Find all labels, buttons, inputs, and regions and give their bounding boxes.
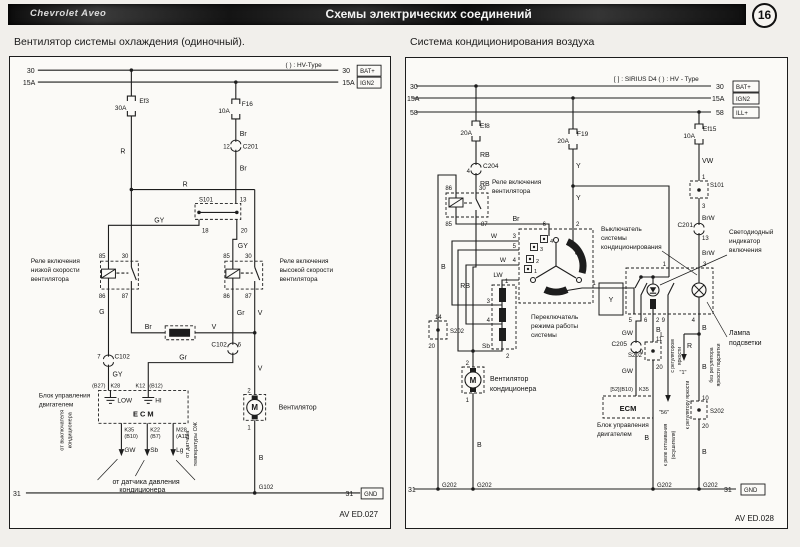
terminal-ign2: IGN2	[360, 81, 375, 87]
label: K28	[110, 384, 120, 390]
label: 31	[724, 487, 732, 494]
label: HI	[155, 397, 162, 404]
label: VW	[702, 158, 714, 165]
ecm-box	[99, 390, 189, 423]
label: вентилятора	[492, 188, 531, 195]
junction-dot	[235, 211, 239, 215]
label: 85	[99, 254, 106, 260]
label: Y	[576, 195, 581, 202]
label: 10	[702, 396, 709, 402]
label: C102	[211, 342, 227, 349]
terminal-bat: BAT+	[736, 85, 751, 91]
wire	[476, 199, 481, 209]
label: 9	[662, 318, 666, 324]
label: 3	[540, 247, 543, 253]
label: Светодиодный	[729, 228, 774, 236]
label: 2	[466, 361, 470, 367]
filled-block	[169, 329, 190, 337]
circle-symbol	[577, 278, 582, 283]
label: Sb	[150, 447, 158, 454]
label: от выключателя	[60, 410, 66, 451]
junction-dot	[651, 349, 655, 353]
switch-arc	[545, 290, 567, 292]
ac-system-diagram: [ ] : SIRIUS D4 ( ) : HV - Type3030BAT+1…	[405, 57, 788, 529]
leader-line	[662, 251, 697, 275]
label: яркости подсветки	[716, 343, 722, 386]
label: 30	[410, 84, 418, 91]
label: 15A	[407, 96, 420, 103]
label: подсветки	[729, 340, 762, 347]
label: 58	[716, 110, 724, 117]
filled-block	[650, 299, 656, 309]
terminal-gnd: GND	[364, 492, 378, 498]
label: BrW	[702, 250, 716, 257]
arrow-head	[665, 395, 671, 402]
label: Переключатель	[531, 314, 579, 321]
label: Вентилятор	[490, 376, 528, 383]
label: 30	[122, 254, 129, 260]
label: ECM	[620, 404, 637, 413]
label: 4	[467, 169, 471, 175]
label: 4	[487, 318, 491, 324]
label: Y	[609, 297, 614, 304]
label: GY	[112, 372, 122, 379]
label: Br	[513, 216, 521, 223]
junction-dot	[697, 188, 701, 192]
label: к реле оттаивания	[663, 423, 669, 466]
filled-block	[470, 388, 476, 392]
label: Y	[576, 163, 581, 170]
pad-dot	[533, 246, 535, 248]
label: Ef3	[139, 98, 149, 105]
label: 86	[445, 186, 452, 192]
label: (B12)	[149, 384, 163, 390]
label: K35	[639, 387, 649, 393]
label: RB	[460, 283, 470, 290]
terminal-ign2: IGN2	[736, 97, 751, 103]
label: 15A	[712, 96, 725, 103]
label: R	[183, 182, 188, 189]
label: кондиционирования	[601, 244, 662, 251]
label: S101	[199, 197, 214, 203]
connector-c102	[228, 343, 238, 354]
label: 86	[223, 294, 230, 300]
label: S202	[450, 329, 465, 335]
label: 30	[27, 68, 35, 75]
label: RB	[480, 152, 490, 159]
label: GW	[622, 368, 634, 375]
label: G	[99, 309, 104, 316]
wire	[635, 277, 641, 288]
brand-label: Chevrolet Aveo	[30, 8, 106, 19]
wire	[452, 241, 519, 305]
right-diagram-title: Система кондиционирования воздуха	[410, 36, 594, 48]
leader-line	[135, 460, 144, 476]
led-triangle	[650, 287, 656, 292]
fuse-ef15	[695, 124, 703, 144]
label: B	[477, 442, 482, 449]
label: R	[120, 149, 125, 156]
label: индикатор	[729, 238, 761, 245]
label: Gr	[179, 355, 187, 362]
label: 13	[240, 197, 247, 203]
label: системы	[531, 332, 557, 339]
coil-diagonal	[449, 198, 463, 207]
label: 13	[702, 236, 709, 242]
label: 87	[122, 294, 129, 300]
label: без регулятора	[709, 347, 715, 382]
label: 20A	[557, 138, 569, 145]
variant-note: ( ) : HV-Type	[286, 62, 323, 69]
label: 20	[702, 424, 709, 430]
label: 20A	[460, 130, 472, 137]
label: GW	[124, 447, 136, 454]
label: Блок управления	[597, 422, 649, 429]
label: 30A	[115, 105, 127, 112]
label: C204	[483, 163, 499, 170]
label: 3	[702, 204, 706, 210]
ground-icon	[105, 397, 117, 403]
coil-diagonal	[226, 269, 240, 278]
label: 1	[247, 425, 251, 431]
label: 1	[702, 175, 706, 181]
fuse-ef3	[127, 96, 135, 116]
label: двигателем	[597, 431, 632, 438]
wire	[641, 283, 647, 314]
label: Br	[240, 166, 248, 173]
label: 31	[345, 491, 353, 498]
label: кондиционера	[490, 386, 536, 393]
label: GW	[622, 330, 634, 337]
switch-arc	[567, 242, 583, 273]
label: S101	[710, 183, 725, 189]
label: Ef8	[480, 123, 490, 130]
wire	[623, 288, 634, 314]
label: "1"	[680, 370, 687, 376]
label: 10A	[218, 108, 230, 115]
label: (B10)	[124, 434, 138, 440]
label: V	[212, 324, 217, 331]
filled-block	[252, 395, 258, 399]
junction-dot	[559, 289, 563, 293]
label: режима работы	[531, 322, 578, 330]
label: C201	[677, 222, 693, 229]
wire	[255, 267, 260, 280]
label: Лампа	[729, 330, 750, 337]
ground-icon	[142, 397, 154, 403]
label: 1	[663, 262, 667, 268]
label: 87	[481, 222, 488, 228]
header-bar: Chevrolet Aveo Схемы электрических соеди…	[8, 4, 746, 25]
label: 31	[13, 491, 21, 498]
filled-block	[499, 308, 506, 322]
wire	[456, 217, 549, 229]
label: B	[702, 449, 707, 456]
label: 20	[656, 365, 663, 371]
circle-symbol	[554, 238, 559, 243]
label: 2	[536, 259, 539, 265]
label: GY	[154, 217, 164, 224]
wire	[131, 267, 136, 280]
label: G202	[703, 483, 718, 489]
splice-s101	[195, 203, 241, 219]
circle-symbol	[531, 278, 536, 283]
label: B	[441, 264, 446, 271]
label: G202	[442, 483, 457, 489]
filled-block	[470, 368, 476, 372]
pad-dot	[527, 268, 529, 270]
label: 20	[241, 228, 248, 234]
label: 1	[592, 281, 596, 287]
terminal-gnd: GND	[744, 488, 758, 494]
label: E C M	[133, 409, 154, 418]
cooling-fan-diagram: ( ) : HV-Type3030BAT+15A15AIGN2Ef330ARF1…	[9, 56, 391, 529]
label: S202	[628, 353, 643, 359]
filled-block	[252, 415, 258, 419]
ac-system-schematic: [ ] : SIRIUS D4 ( ) : HV - Type3030BAT+1…	[406, 69, 787, 528]
leader-line	[98, 459, 118, 480]
label: LW	[493, 272, 503, 279]
label: 85	[223, 254, 230, 260]
label: с регулятором	[670, 339, 676, 373]
arrow-head	[144, 449, 150, 456]
label: 87	[245, 294, 252, 300]
label: F16	[242, 101, 254, 108]
label: [52](B10)	[610, 387, 633, 393]
fuse-ef8	[472, 121, 480, 141]
label: Реле включения	[31, 258, 80, 265]
junction-dot	[436, 328, 440, 332]
label: V	[258, 310, 263, 317]
label: G102	[259, 485, 274, 491]
label: B	[644, 435, 649, 442]
wire	[473, 217, 476, 351]
pad-dot	[543, 238, 545, 240]
label: кондиционера	[68, 411, 74, 448]
label: 14	[435, 315, 442, 321]
label: вентилятора	[31, 276, 69, 283]
label: 15A	[23, 80, 36, 87]
label: B	[259, 455, 264, 462]
junction-dot	[697, 408, 701, 412]
label: S202	[710, 409, 725, 415]
label: V	[258, 366, 263, 373]
terminal-ill: ILL+	[736, 111, 748, 117]
label: системы	[601, 235, 627, 242]
label: 31	[408, 487, 416, 494]
label: 1	[534, 269, 537, 275]
label: от датчика давления	[112, 479, 179, 486]
label: 5	[513, 244, 517, 250]
label: 86	[99, 294, 106, 300]
label: 2	[247, 388, 251, 394]
label: 3	[513, 234, 517, 240]
label: 85	[445, 222, 452, 228]
label: "56"	[659, 410, 669, 416]
label: 2	[506, 354, 510, 360]
fuse-f19	[569, 129, 577, 149]
label: K12	[136, 384, 146, 390]
label: K22	[150, 427, 160, 433]
label: 30	[479, 186, 486, 192]
label: GY	[238, 243, 248, 250]
diagram-code: AV ED.027	[339, 510, 378, 519]
junction-dot	[197, 211, 201, 215]
label: LOW	[117, 397, 133, 404]
label: 4	[550, 239, 553, 245]
label: Br	[145, 324, 153, 331]
pad-dot	[529, 258, 531, 260]
connector-c204	[471, 163, 481, 174]
label: 3	[487, 299, 491, 305]
label: R	[687, 343, 692, 350]
label: (осушителя)	[671, 430, 677, 459]
label: Реле включения	[492, 179, 542, 186]
variant-note: [ ] : SIRIUS D4 ( ) : HV - Type	[614, 76, 699, 83]
wire	[233, 219, 237, 261]
label: 4	[692, 318, 696, 324]
label: C205	[611, 341, 627, 348]
label: F19	[577, 131, 589, 138]
label: Gr	[237, 310, 245, 317]
label: G202	[657, 483, 672, 489]
label: G202	[477, 483, 492, 489]
wire	[636, 314, 641, 343]
label: 6	[543, 222, 547, 228]
label: двигателем	[39, 401, 74, 408]
left-diagram-title: Вентилятор системы охлаждения (одиночный…	[14, 36, 245, 48]
wire	[536, 266, 556, 278]
label: C102	[114, 354, 130, 361]
wire	[668, 283, 674, 314]
label: 3	[703, 262, 707, 268]
label: Ef15	[703, 126, 717, 133]
diagram-code: AV ED.028	[735, 514, 775, 523]
label: W	[491, 233, 498, 240]
label: Блок управления	[39, 392, 91, 399]
label: 30	[245, 254, 252, 260]
junction-dot	[575, 251, 579, 255]
label: Lg	[176, 447, 184, 454]
wire	[564, 288, 599, 291]
label: B	[702, 325, 707, 332]
label: 6	[644, 318, 648, 324]
label: 2	[656, 318, 660, 324]
label: Sb	[482, 343, 490, 350]
label: 2	[576, 222, 580, 228]
arrow-head	[119, 449, 125, 456]
arrow-head	[170, 449, 176, 456]
label: температуры ОЖ	[193, 422, 199, 466]
label: 10A	[683, 133, 695, 140]
coil-diagonal	[102, 269, 116, 278]
wire	[556, 266, 576, 278]
label: 4	[513, 258, 517, 264]
label: Реле включения	[280, 258, 329, 265]
label: 5	[629, 318, 633, 324]
label: низкой скорости	[31, 266, 80, 274]
page-number-badge: 16	[752, 3, 777, 28]
label: высокой скорости	[280, 266, 334, 274]
label: 20	[428, 344, 435, 350]
label: (B7)	[150, 434, 161, 440]
label: 6	[238, 343, 242, 349]
motor-letter: M	[251, 403, 258, 412]
label: C201	[243, 144, 259, 151]
label: K35	[124, 427, 134, 433]
leader-line	[707, 302, 727, 337]
cooling-fan-schematic: ( ) : HV-Type3030BAT+15A15AIGN2Ef330ARF1…	[10, 57, 390, 528]
label: 7	[97, 355, 101, 361]
label: Вентилятор	[279, 404, 317, 411]
connector-c201	[694, 223, 704, 234]
filled-block	[499, 328, 506, 341]
label: (B27)	[92, 384, 106, 390]
label: 18	[202, 228, 209, 234]
label: Br	[240, 131, 248, 138]
label: 15A	[342, 80, 355, 87]
label: к регулятору яркости	[685, 380, 691, 429]
label: 30	[342, 68, 350, 75]
label: L	[660, 332, 664, 339]
label: 1	[466, 398, 470, 404]
label: Выключатель	[601, 226, 642, 233]
label: 58	[410, 110, 418, 117]
label: вентилятора	[280, 276, 318, 283]
filled-block	[499, 288, 506, 302]
label: W	[500, 257, 507, 264]
label: включения	[729, 247, 762, 254]
terminal-bat: BAT+	[360, 69, 375, 75]
fuse-f16	[232, 99, 240, 119]
label: от датчика	[185, 430, 191, 458]
label: 30	[716, 84, 724, 91]
label: BrW	[702, 215, 716, 222]
motor-letter: M	[470, 376, 477, 385]
label: 12	[223, 145, 230, 151]
label: B	[702, 364, 707, 371]
leader-line	[660, 255, 727, 285]
page-title: Схемы электрических соединений	[326, 7, 532, 21]
connector-c201	[231, 140, 241, 151]
connector-c102	[104, 355, 114, 366]
